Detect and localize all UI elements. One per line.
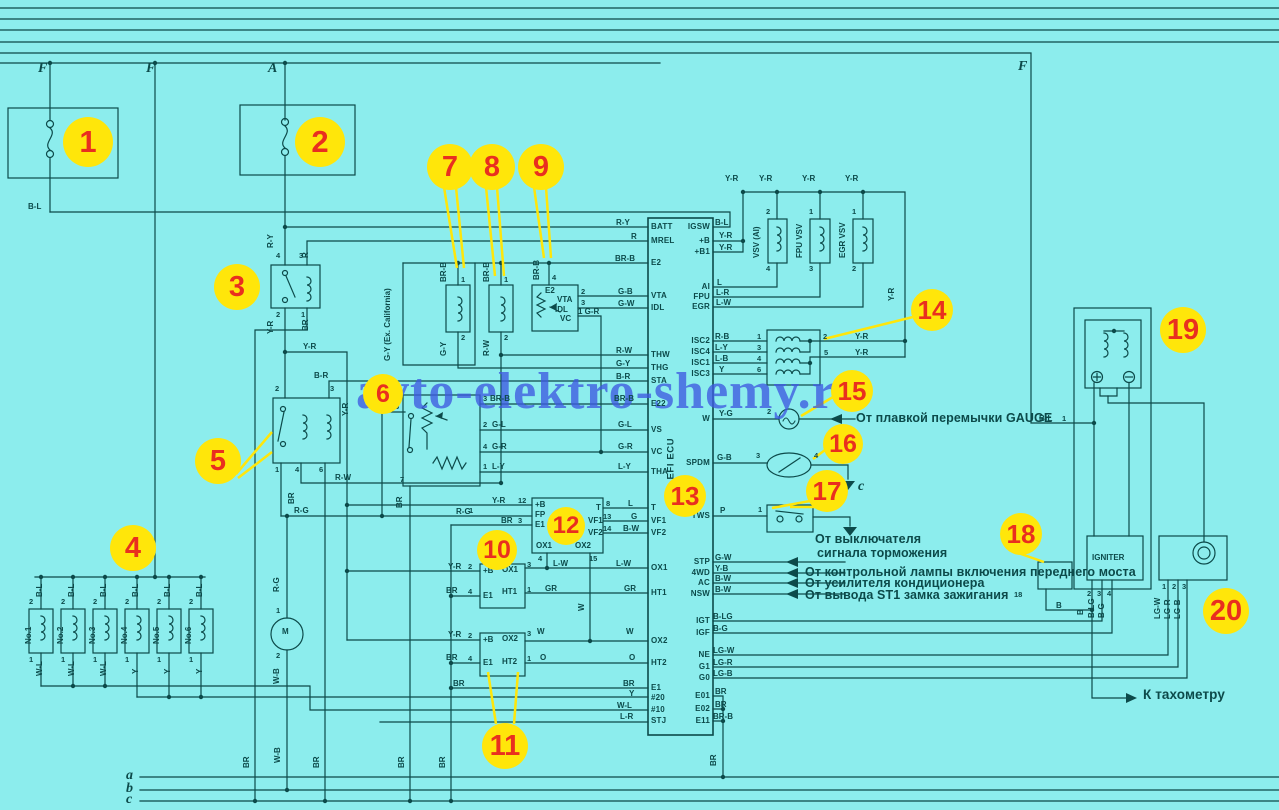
wire-color-label: O — [629, 654, 635, 662]
wire-color-label: G-W — [618, 300, 634, 308]
pin-number: 1 — [461, 276, 465, 284]
wire-color-label: Y-R — [802, 175, 815, 183]
pin-number: 2 — [766, 208, 770, 216]
wire-color-label: BR — [715, 688, 727, 696]
wire-color-label: BR — [715, 701, 727, 709]
ecu-pin: IDL — [651, 304, 665, 312]
ecu-pin: VF2 — [651, 529, 666, 537]
ecu-pin: VC — [651, 448, 663, 456]
ecu-pin: IGF — [696, 629, 710, 637]
component-label: G-Y (Ex. California) — [384, 288, 392, 361]
wire-color-label: B-G — [713, 625, 728, 633]
ecu-pin: E1 — [651, 684, 661, 692]
wire-color-label: Y — [719, 366, 724, 374]
ecu-pin: NE — [698, 651, 710, 659]
distributor-box — [1159, 536, 1227, 580]
wire-color-label: L — [628, 500, 633, 508]
component-label: OX1 — [536, 542, 552, 550]
wire-color-label: BR-B — [490, 395, 510, 403]
pin-number: 5 — [824, 349, 828, 357]
circuit-letter: c — [858, 480, 864, 494]
wire-color-label: Y-R — [759, 175, 772, 183]
ecu-pin: E11 — [696, 717, 710, 725]
component-label: HT2 — [502, 658, 517, 666]
pin-number: 1 — [276, 607, 280, 615]
callout-badge-6: 6 — [363, 374, 403, 414]
pin-number: 1 — [809, 208, 813, 216]
wire-color-label: BR-B — [713, 713, 733, 721]
pin-number: 2 — [1087, 590, 1091, 598]
callout-badge-20: 20 — [1203, 588, 1249, 634]
wire-color-label: W-B — [273, 668, 281, 684]
ecu-pin: STA — [651, 377, 667, 385]
component-label: No.2 — [57, 627, 65, 644]
wire-color-label: R-Y — [267, 234, 275, 248]
wire-color-label: LG-B — [713, 670, 733, 678]
pin-number: 1 — [483, 463, 487, 471]
wire-color-label: G-W — [715, 554, 731, 562]
pin-number: 4 — [468, 588, 472, 596]
pin-number: 2 — [468, 563, 472, 571]
wire-color-label: P — [720, 507, 725, 515]
wire-color-label: B-R — [616, 373, 630, 381]
pin-number: 3 — [1097, 590, 1101, 598]
component-label: +B — [483, 636, 493, 644]
pin-number: 2 — [125, 598, 129, 606]
ecu-pin: ISC4 — [691, 348, 710, 356]
wire-color-label: Y-R — [845, 175, 858, 183]
pin-number: 1 — [189, 656, 193, 664]
wire-color-label: LG-W — [713, 647, 734, 655]
wiring-diagram: avto-elektro-shemy.ru EFI ECU B-LR-YRBR-… — [0, 0, 1279, 810]
pin-number: 4 — [468, 655, 472, 663]
component-label: OX2 — [502, 635, 518, 643]
pin-number: 3 — [581, 299, 585, 307]
component-label: M — [282, 628, 289, 636]
pin-number: 1 — [757, 333, 761, 341]
wire-color-label: LG-W — [1154, 598, 1162, 619]
annotation: От выключателя — [815, 533, 921, 546]
pin-number: 2 — [157, 598, 161, 606]
wire-color-label: R-G — [273, 577, 281, 592]
wire-color-label: Y-R — [719, 232, 732, 240]
pin-number: 2 — [504, 334, 508, 342]
ecu-pin: THG — [651, 364, 669, 372]
ecu-pin: BATT — [651, 223, 673, 231]
ecu-pin: OX1 — [651, 564, 668, 572]
callout-badge-18: 18 — [1000, 513, 1042, 555]
wire-color-label: Y-R — [492, 497, 505, 505]
component-label: OX2 — [575, 542, 591, 550]
wire-color-label: B-L — [36, 584, 44, 597]
component-label: VC — [560, 315, 571, 323]
component-label: VTA — [557, 296, 572, 304]
ecu-pin: T — [651, 504, 656, 512]
wire-color-label: BR — [243, 756, 251, 768]
wire-color-label: Y-R — [342, 403, 350, 416]
pin-number: 2 — [461, 334, 465, 342]
arrow-stp — [786, 557, 798, 567]
ecu-pin: VS — [651, 426, 662, 434]
wire-color-label: G-R — [618, 443, 633, 451]
ecu-pin: NSW — [691, 590, 710, 598]
pin-number: 14 — [603, 525, 611, 533]
wire-color-label: L-R — [620, 713, 633, 721]
wire-color-label: Y-R — [719, 244, 732, 252]
pin-number: 4 — [538, 555, 542, 563]
wire-color-label: BR-B — [440, 262, 448, 282]
callout-badge-14: 14 — [911, 289, 953, 331]
wire-color-label: Y — [132, 669, 140, 674]
wire-color-label: G-Y — [616, 360, 630, 368]
callout-badge-5: 5 — [195, 438, 241, 484]
pin-number: 6 — [757, 366, 761, 374]
wire-color-label: G-Y — [440, 342, 448, 356]
wire-color-label: BR — [302, 319, 310, 331]
pin-number: 2 — [29, 598, 33, 606]
vsv-ai-box — [768, 219, 787, 263]
wire-color-label: R-Y — [616, 219, 630, 227]
pin-number: 3 — [757, 344, 761, 352]
arrow-ac — [786, 578, 798, 588]
ecu-pin: G1 — [699, 663, 710, 671]
callout-badge-4: 4 — [110, 525, 156, 571]
relay-3-box — [271, 265, 320, 308]
wire-color-label: BR — [396, 496, 404, 508]
pin-number: 2 — [276, 311, 280, 319]
ecu-pin: +B1 — [695, 248, 711, 256]
annotation: сигнала торможения — [817, 547, 947, 560]
pin-number: 3 — [299, 252, 303, 260]
pin-number: 4 — [483, 443, 487, 451]
pin-number: 3 — [527, 561, 531, 569]
pin-number: 2 — [1172, 583, 1176, 591]
callout-badge-11: 11 — [482, 723, 528, 769]
ecu-pin: VF1 — [651, 517, 666, 525]
pin-number: 2 — [61, 598, 65, 606]
wire-color-label: L-R — [716, 289, 729, 297]
arrow-nsw — [786, 589, 798, 599]
pin-number: 2 — [189, 598, 193, 606]
wire-color-label: Y-B — [715, 565, 728, 573]
watermark: avto-elektro-shemy.ru — [356, 366, 866, 418]
wire-color-label: Y-R — [448, 631, 461, 639]
wire-color-label: LG-B — [1174, 599, 1182, 619]
wire-color-label: LG-R — [713, 659, 733, 667]
arrow-tachometer — [1126, 693, 1137, 703]
wire-color-label: L-B — [715, 355, 728, 363]
wire-color-label: R — [631, 233, 637, 241]
wire-color-label: B-L — [196, 584, 204, 597]
pin-number: 2 — [483, 421, 487, 429]
pin-number: 4 — [814, 452, 818, 460]
pin-number: 6 — [319, 466, 323, 474]
wire-color-label: GR — [624, 585, 636, 593]
pin-number: 13 — [603, 513, 611, 521]
pin-number: 3 — [809, 265, 813, 273]
wire-color-label: B-LG — [713, 613, 733, 621]
callout-badge-7: 7 — [427, 144, 473, 190]
wire-color-label: W-L — [68, 661, 76, 676]
ecu-pin: EGR — [692, 303, 710, 311]
wire-color-label: Y-G — [719, 410, 733, 418]
component-label: IDL — [555, 306, 568, 314]
wire-color-label: B-G — [1098, 603, 1106, 618]
wire-color-label: BR-B — [533, 260, 541, 280]
pin-number: 1 — [29, 656, 33, 664]
wire-color-label: B — [1056, 602, 1062, 610]
pin-number: 1 — [469, 507, 473, 515]
ecu-pin: STP — [694, 558, 710, 566]
wire-color-label: GR — [545, 585, 557, 593]
pin-number: 1 — [527, 586, 531, 594]
wire-color-label: BR — [453, 680, 465, 688]
circuit-letter: c — [126, 793, 132, 807]
ecu-pin: THA — [651, 468, 668, 476]
wire-color-label: B-L — [100, 584, 108, 597]
ecu-pin: ISC3 — [691, 370, 710, 378]
wire-color-label: B-W — [623, 525, 639, 533]
ecu-pin: E01 — [695, 692, 710, 700]
pin-number: 4 — [295, 466, 299, 474]
ecu-pin: G0 — [699, 674, 710, 682]
pin-number: 2 — [767, 408, 771, 416]
wire-color-label: B — [1077, 609, 1085, 615]
wire-color-label: G-L — [492, 421, 506, 429]
wire-color-label: G — [631, 513, 637, 521]
ecu-pin: IGT — [696, 617, 710, 625]
wire-color-label: Y-R — [725, 175, 738, 183]
wire-color-label: R-W — [483, 340, 491, 356]
pin-number: 3 — [483, 395, 487, 403]
wire-color-label: G-B — [717, 454, 732, 462]
ecu-pin: E2 — [651, 259, 661, 267]
callout-badge-1: 1 — [63, 117, 113, 167]
circuit-letter: F — [146, 62, 155, 76]
component-label: E2 — [545, 287, 555, 295]
pin-number: 4 — [766, 265, 770, 273]
pin-number: 18 — [1014, 591, 1022, 599]
wire-color-label: BR — [439, 756, 447, 768]
pin-number: 1 — [275, 466, 279, 474]
component-label: No.6 — [185, 627, 193, 644]
annotation: От плавкой перемычки GAUGE — [856, 412, 1052, 425]
wire-color-label: W-L — [617, 702, 632, 710]
component-label: EGR VSV — [839, 222, 847, 258]
pin-number: 3 — [518, 517, 522, 525]
ecu-pin: STJ — [651, 717, 666, 725]
pin-number: 4 — [1107, 590, 1111, 598]
wire-color-label: BR — [313, 756, 321, 768]
annotation: К тахометру — [1143, 688, 1225, 702]
circuit-letter: A — [268, 62, 277, 76]
ecu-pin: AC — [698, 579, 710, 587]
callout-badge-12: 12 — [547, 507, 585, 545]
wire-color-label: B-L — [28, 203, 41, 211]
component-label: E1 — [483, 659, 493, 667]
pin-number: 1 — [61, 656, 65, 664]
ecu-pin: THW — [651, 351, 670, 359]
callout-badge-8: 8 — [469, 144, 515, 190]
pin-number: 4 — [276, 252, 280, 260]
wire-color-label: BR-B — [615, 255, 635, 263]
wire-color-label: B-L — [68, 584, 76, 597]
component-label: IGNITER — [1092, 554, 1124, 562]
wire-color-label: R — [302, 252, 310, 258]
wire-color-label: L-W — [553, 560, 568, 568]
circuit-letter: F — [1018, 60, 1027, 74]
wire-color-label: 1 G-R — [578, 308, 599, 316]
wire-color-label: R-W — [616, 347, 632, 355]
resistor-7-box — [446, 285, 470, 332]
ecu-pin: HT1 — [651, 589, 667, 597]
pin-number: 1 — [504, 276, 508, 284]
pin-number: 3 — [1182, 583, 1186, 591]
component-label: FPU VSV — [796, 224, 804, 258]
wire-color-label: Y-R — [267, 321, 275, 334]
callout-badge-16: 16 — [823, 424, 863, 464]
callout-badge-17: 17 — [806, 470, 848, 512]
wire-color-label: BR — [623, 680, 635, 688]
ecu-pin: FPU — [693, 293, 710, 301]
ecu-pin: OX2 — [651, 637, 668, 645]
ecu-pin: ISC1 — [691, 359, 710, 367]
wire-color-label: Y-R — [303, 343, 316, 351]
pin-number: 1 — [157, 656, 161, 664]
callout-badge-3: 3 — [214, 264, 260, 310]
wire-color-label: LG-R — [1164, 599, 1172, 619]
tws-switch-box — [767, 505, 813, 532]
wire-color-label: Y-R — [855, 349, 868, 357]
pin-number: 7 — [400, 476, 404, 484]
component-label: No.5 — [153, 627, 161, 644]
wire-color-label: BR — [288, 492, 296, 504]
annotation: От вывода ST1 замка зажигания — [805, 589, 1009, 602]
wire-color-label: L-W — [616, 560, 631, 568]
egr-vsv-box — [853, 219, 873, 263]
pin-number: 2 — [93, 598, 97, 606]
component-label: VF1 — [588, 517, 603, 525]
ecu-pin: VTA — [651, 292, 667, 300]
wire-color-label: L — [717, 279, 722, 287]
pin-number: 12 — [518, 497, 526, 505]
pin-number: 3 — [527, 630, 531, 638]
component-label: +B — [535, 501, 545, 509]
ecu-pin: #20 — [651, 694, 665, 702]
pin-number: 8 — [606, 500, 610, 508]
resistor-8-box — [489, 285, 513, 332]
wire-color-label: Y — [629, 690, 634, 698]
wire-color-label: BR — [446, 654, 458, 662]
pin-number: 1 — [852, 208, 856, 216]
wire-color-label: R-G — [294, 507, 309, 515]
ecu-pin: #10 — [651, 706, 665, 714]
wire-color-label: G-R — [492, 443, 507, 451]
ecu-pin: AI — [702, 283, 710, 291]
wire-color-label: BR — [501, 517, 513, 525]
pin-number: 3 — [756, 452, 760, 460]
pin-number: 2 — [852, 265, 856, 273]
wire-color-label: W — [537, 628, 545, 636]
pin-number: 1 — [93, 656, 97, 664]
wire-color-label: B-LG — [1088, 598, 1096, 618]
wire-color-label: W-L — [36, 661, 44, 676]
wire-color-label: L-Y — [715, 344, 728, 352]
wire-color-label: B-R — [314, 372, 328, 380]
pin-number: 1 — [758, 506, 762, 514]
ecu-pin: HT2 — [651, 659, 667, 667]
wire-color-label: L-Y — [492, 463, 505, 471]
wire-color-label: Y — [196, 669, 204, 674]
component-label: E1 — [483, 592, 493, 600]
component-label: T — [596, 504, 601, 512]
callout-badge-15: 15 — [831, 370, 873, 412]
pin-number: 4 — [552, 274, 556, 282]
ecu-pin: MREL — [651, 237, 674, 245]
callout-badge-19: 19 — [1160, 307, 1206, 353]
wire-color-label: W — [626, 628, 634, 636]
callout-badge-9: 9 — [518, 144, 564, 190]
wire-color-label: BR — [398, 756, 406, 768]
component-label: No.1 — [25, 627, 33, 644]
pin-number: 4 — [757, 355, 761, 363]
ecu-pin: IGSW — [688, 223, 710, 231]
ecu-pin: +B — [699, 237, 710, 245]
callout-badge-2: 2 — [295, 117, 345, 167]
wire-color-label: BR-B — [614, 395, 634, 403]
component-label: VF2 — [588, 529, 603, 537]
wire-color-label: BR — [710, 754, 718, 766]
ecu-pin: E22 — [651, 400, 666, 408]
callout-badge-10: 10 — [477, 530, 517, 570]
pin-number: 2 — [275, 385, 279, 393]
pin-number: 3 — [330, 385, 334, 393]
pin-number: 1 — [1162, 583, 1166, 591]
wire-color-label: Y-R — [888, 288, 896, 301]
component-label: HT1 — [502, 588, 517, 596]
arrow-4wd — [786, 568, 798, 578]
pin-number: 2 — [581, 288, 585, 296]
ecu-pin: E02 — [695, 705, 710, 713]
ecu-pin: ISC2 — [691, 337, 710, 345]
circuit-letter: F — [38, 62, 47, 76]
wire-color-label: B-W — [715, 586, 731, 594]
wire-color-label: W-B — [274, 747, 282, 763]
pin-number: 15 — [589, 555, 597, 563]
badge-leader-lines — [236, 187, 1044, 724]
wire-color-label: O — [540, 654, 546, 662]
wire-color-label: BR-B — [483, 262, 491, 282]
pin-number: 2 — [823, 333, 827, 341]
pin-number: 1 — [527, 655, 531, 663]
pin-number: 1 — [301, 311, 305, 319]
wire-color-label: W — [578, 603, 586, 611]
pin-number: 1 — [125, 656, 129, 664]
wire-color-label: Y — [164, 669, 172, 674]
wire-color-label: B-L — [164, 584, 172, 597]
pin-number: 2 — [276, 652, 280, 660]
wire-color-label: W-L — [100, 661, 108, 676]
ecu-pin: 4WD — [692, 569, 710, 577]
component-label: No.4 — [121, 627, 129, 644]
ecu-pin: SPDM — [686, 459, 710, 467]
wire-color-label: R-W — [335, 474, 351, 482]
fpu-vsv-box — [810, 219, 830, 263]
component-label: E1 — [535, 521, 545, 529]
ecu-pin: W — [702, 415, 710, 423]
wire-color-label: L-W — [716, 299, 731, 307]
callout-badge-13: 13 — [664, 475, 706, 517]
